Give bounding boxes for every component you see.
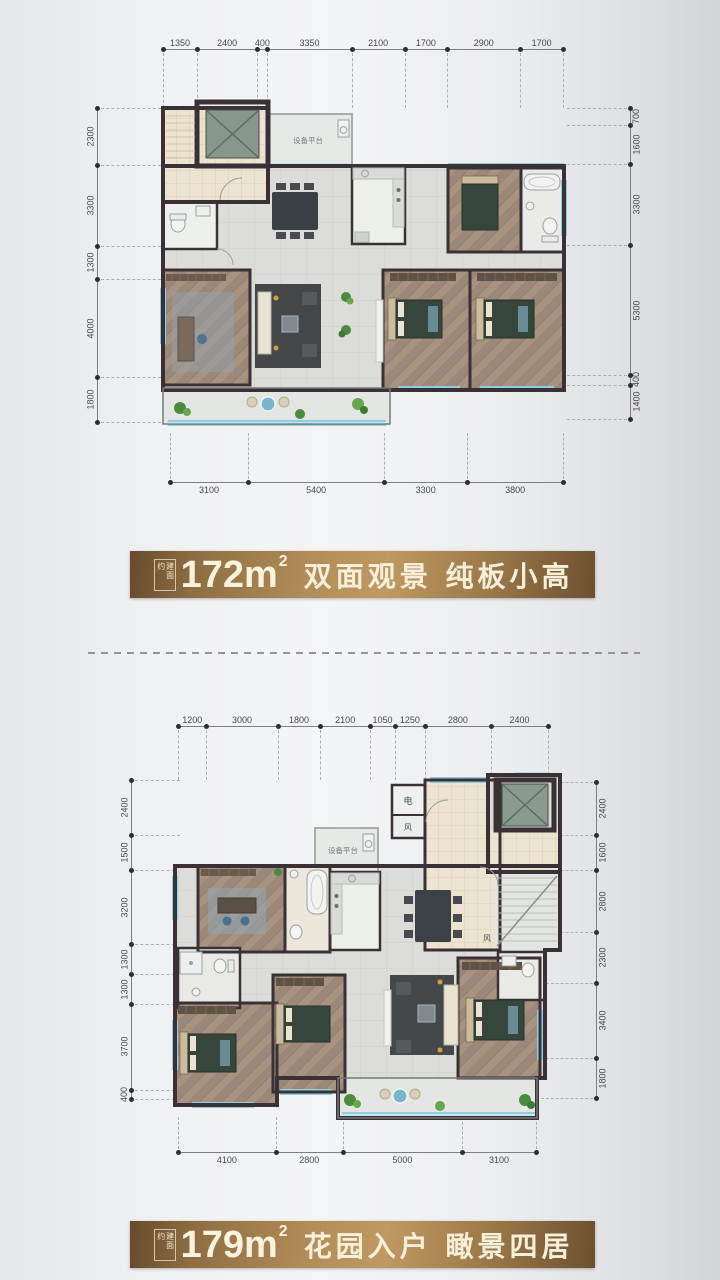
dim-tick [628, 106, 633, 111]
dim-tick [489, 724, 494, 729]
dim-label: 2800 [299, 1156, 319, 1165]
dim-segment: 1600 [630, 125, 644, 164]
dim-segment: 1250 [395, 713, 425, 727]
dim-segment: 3100 [462, 1152, 536, 1168]
section-divider [88, 652, 640, 654]
vent-shaft-label-2: 风 [483, 934, 491, 943]
dim-segment: 2800 [425, 713, 491, 727]
dim-label: 3300 [416, 486, 436, 495]
dim-label: 2300 [87, 126, 96, 146]
dim-tick [195, 47, 200, 52]
dim-tick [594, 1096, 599, 1101]
platform-label: 设备平台 [293, 135, 323, 145]
dim-label: 4000 [87, 318, 96, 338]
dim-tick [594, 833, 599, 838]
dim-tick [460, 1150, 465, 1155]
dim-tick [546, 724, 551, 729]
dim-segment: 1600 [596, 835, 610, 870]
dim-segment: 1400 [630, 385, 644, 419]
dim-tick [265, 47, 270, 52]
plan2-banner: 建面约 179m2 花园入户 瞰景四居 [130, 1221, 595, 1268]
dim-label: 2300 [599, 948, 608, 968]
dim-tick [423, 724, 428, 729]
dim-segment: 5300 [630, 245, 644, 375]
dim-label: 1600 [633, 135, 642, 155]
dim-tick [95, 375, 100, 380]
dim-guide [567, 245, 627, 246]
banner-title: 花园入户 瞰景四居 [304, 1225, 574, 1265]
dim-guide [567, 385, 627, 386]
dim-tick [368, 724, 373, 729]
dim-segment: 1050 [370, 713, 395, 727]
dim-segment: 3350 [267, 36, 351, 50]
dim-label: 2400 [217, 39, 237, 48]
dim-label: 3400 [599, 1011, 608, 1031]
dim-segment: 2400 [491, 713, 548, 727]
dim-tick [628, 162, 633, 167]
dim-guide [467, 433, 468, 479]
dim-segment: 1350 [163, 36, 197, 50]
dim-label: 3800 [505, 486, 525, 495]
dim-segment: 1700 [520, 36, 563, 50]
dim-segment: 1800 [278, 713, 321, 727]
plan1-bottom-dims: 3100540033003800 [170, 482, 563, 498]
dim-label: 3000 [232, 716, 252, 725]
plan2-right-dims: 240016002800230034001800 [596, 782, 610, 1098]
dim-tick [518, 47, 523, 52]
dim-tick [246, 480, 251, 485]
dim-guide [567, 375, 627, 376]
banner-title: 双面观景 纯板小高 [304, 555, 574, 595]
dim-segment: 5400 [248, 482, 384, 498]
dim-tick [628, 243, 633, 248]
dim-label: 2100 [368, 39, 388, 48]
vent-shaft-label: 风 [404, 823, 412, 832]
plan1-floorplan: 设备平台 [150, 92, 570, 432]
dim-label: 3300 [87, 196, 96, 216]
dim-label: 1400 [633, 392, 642, 412]
dim-segment: 2800 [276, 1152, 343, 1168]
dim-guide [170, 433, 171, 479]
dim-segment: 2900 [447, 36, 520, 50]
dim-tick [382, 480, 387, 485]
dim-tick [393, 724, 398, 729]
dim-label: 1300 [87, 253, 96, 273]
dim-segment: 2300 [84, 108, 98, 165]
dim-segment: 1200 [178, 713, 206, 727]
dim-guide [563, 433, 564, 479]
dim-tick [594, 981, 599, 986]
plan2-bottom-dims: 4100280050003100 [178, 1152, 536, 1168]
dim-tick [204, 724, 209, 729]
dim-tick [534, 1150, 539, 1155]
dim-tick [465, 480, 470, 485]
dim-label: 5000 [392, 1156, 412, 1165]
dim-tick [255, 47, 260, 52]
dim-segment: 2100 [320, 713, 370, 727]
dim-segment: 1800 [84, 377, 98, 422]
dim-segment: 3400 [596, 983, 610, 1058]
dim-segment: 2400 [596, 782, 610, 835]
dim-label: 1250 [400, 716, 420, 725]
plan1-banner: 建面约 172m2 双面观景 纯板小高 [130, 551, 595, 598]
dim-label: 1800 [87, 390, 96, 410]
dim-label: 1800 [289, 716, 309, 725]
area-value: 179m2 [181, 1226, 288, 1264]
dim-guide [384, 433, 385, 479]
plan2-top-dims: 12003000180021001050125028002400 [178, 713, 548, 727]
dim-label: 5300 [633, 300, 642, 320]
dim-tick [594, 1056, 599, 1061]
dim-label: 700 [633, 109, 642, 124]
dim-tick [628, 123, 633, 128]
dim-tick [561, 480, 566, 485]
plan1-left-dims: 23003300130040001800 [84, 108, 98, 422]
dim-tick [168, 480, 173, 485]
elec-shaft-label: 电 [403, 795, 412, 807]
dim-label: 2800 [599, 891, 608, 911]
dim-tick [403, 47, 408, 52]
dim-tick [628, 417, 633, 422]
dim-tick [95, 277, 100, 282]
dim-segment: 5000 [343, 1152, 462, 1168]
dim-segment: 3800 [467, 482, 563, 498]
dim-label: 3100 [199, 486, 219, 495]
dim-segment: 3100 [170, 482, 248, 498]
dim-label: 2400 [510, 716, 530, 725]
dim-label: 1700 [416, 39, 436, 48]
dim-tick [594, 868, 599, 873]
dim-guide [567, 125, 627, 126]
dim-label: 2400 [599, 799, 608, 819]
dim-tick [95, 163, 100, 168]
plan1-top-dims: 1350240040033502100170029001700 [163, 36, 563, 50]
dim-segment: 2300 [596, 932, 610, 983]
dim-guide [567, 419, 627, 420]
plan1-right-dims: 7001600330053004001400 [630, 108, 644, 419]
dim-tick [628, 383, 633, 388]
dim-label: 2800 [448, 716, 468, 725]
dim-segment: 1800 [596, 1058, 610, 1098]
dim-label: 1700 [532, 39, 552, 48]
dim-label: 1050 [373, 716, 393, 725]
dim-tick [161, 47, 166, 52]
dim-label: 2100 [335, 716, 355, 725]
dim-tick [628, 373, 633, 378]
dim-tick [176, 724, 181, 729]
dim-segment: 2400 [197, 36, 257, 50]
dim-tick [341, 1150, 346, 1155]
dim-label: 2900 [474, 39, 494, 48]
dim-tick [274, 1150, 279, 1155]
dim-segment: 3300 [384, 482, 467, 498]
dim-segment: 4000 [84, 279, 98, 378]
dim-label: 4100 [217, 1156, 237, 1165]
area-tag: 建面约 [154, 559, 176, 591]
dim-tick [594, 780, 599, 785]
dim-segment: 2100 [352, 36, 405, 50]
dim-tick [95, 420, 100, 425]
dim-label: 1800 [599, 1068, 608, 1088]
dim-tick [561, 47, 566, 52]
dim-segment: 3000 [206, 713, 277, 727]
area-value: 172m2 [181, 556, 288, 594]
dim-label: 3350 [300, 39, 320, 48]
platform-label: 设备平台 [328, 845, 358, 855]
dim-segment: 3300 [630, 164, 644, 245]
dim-label: 3100 [489, 1156, 509, 1165]
dim-label: 1600 [599, 843, 608, 863]
dim-label: 3300 [633, 195, 642, 215]
page-background: { "colors": {"banner_gold":"#b48e5a","wa… [0, 0, 720, 1280]
dim-guide [567, 108, 627, 109]
dim-tick [276, 724, 281, 729]
dim-tick [95, 244, 100, 249]
dim-guide [248, 433, 249, 479]
dim-label: 1350 [170, 39, 190, 48]
area-tag: 建面约 [154, 1229, 176, 1261]
dim-segment: 3300 [84, 165, 98, 247]
dim-segment: 4100 [178, 1152, 276, 1168]
dim-tick [445, 47, 450, 52]
dim-segment: 700 [630, 108, 644, 125]
dim-label: 1200 [182, 716, 202, 725]
dim-tick [594, 930, 599, 935]
dim-guide [567, 164, 627, 165]
plan2-floorplan: 设备平台 电 风 风 [100, 760, 570, 1125]
dim-tick [95, 106, 100, 111]
dim-tick [318, 724, 323, 729]
dim-label: 5400 [306, 486, 326, 495]
dim-segment: 1300 [84, 246, 98, 278]
dim-tick [350, 47, 355, 52]
dim-tick [176, 1150, 181, 1155]
dim-segment: 1700 [405, 36, 448, 50]
dim-segment: 2800 [596, 870, 610, 932]
